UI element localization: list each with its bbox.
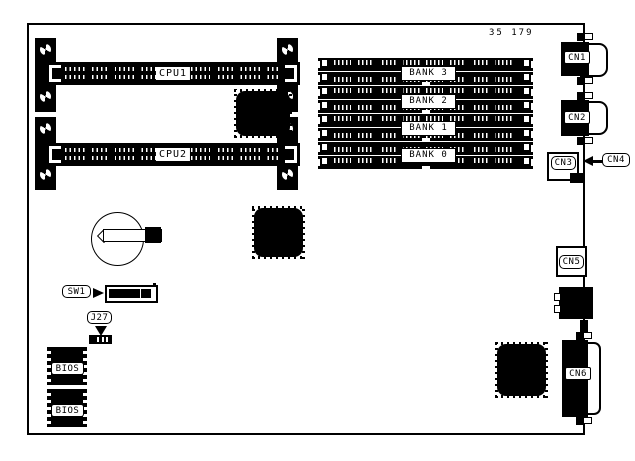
screw-tab (583, 332, 592, 339)
screw-hole-icon (40, 44, 51, 55)
screw-tab (584, 77, 593, 84)
sw1-arrow-icon (93, 288, 104, 298)
cpu2-label: CPU2 (156, 148, 190, 161)
jumper-block (89, 335, 112, 344)
cpu-slot-2: CPU2 (46, 143, 300, 166)
dip-switch-segment (141, 289, 151, 298)
cpu-slot-1: CPU1 (46, 62, 300, 85)
chip-body (236, 91, 290, 136)
cn3-label: CN3 (551, 156, 576, 170)
bank2-label: BANK 2 (401, 94, 456, 109)
qfp-chip-bottom (495, 342, 548, 398)
port-tab (554, 305, 561, 313)
screw-tab (584, 33, 593, 40)
dimm-contacts (334, 88, 517, 93)
sw1-label: SW1 (62, 285, 91, 298)
screw-tab (584, 92, 593, 99)
port-tab (554, 293, 561, 301)
cn6-label: CN6 (565, 367, 591, 380)
screw-hole-icon (40, 91, 51, 102)
bios2-label: BIOS (51, 404, 84, 417)
battery-clip-end (145, 227, 161, 243)
dimm-contacts (334, 60, 517, 65)
bank0-label: BANK 0 (401, 148, 456, 163)
cpu1-label: CPU1 (156, 67, 190, 80)
chipset-chip (234, 89, 292, 138)
bank1-label: BANK 1 (401, 121, 456, 136)
qfp-chip-center (252, 206, 305, 259)
bank3-label: BANK 3 (401, 66, 456, 81)
cn2-label: CN2 (564, 111, 590, 124)
cn3-notch (570, 173, 585, 183)
screw-hole-icon (40, 123, 51, 134)
cn4-arrow-icon (583, 156, 593, 166)
dip-switch-segment (109, 289, 140, 298)
screw-hole-icon (40, 169, 51, 180)
screw-tab (584, 137, 593, 144)
j27-label: J27 (87, 311, 112, 324)
bios1-label: BIOS (51, 362, 84, 375)
chip-body (497, 344, 546, 396)
part-number: 35 179 (489, 28, 534, 38)
screw-hole-icon (282, 169, 293, 180)
chip-body (254, 208, 303, 257)
cn5-label: CN5 (559, 255, 584, 269)
motherboard-diagram: 35 179 CPU1 CPU2 BAN (0, 0, 635, 461)
cn1-label: CN1 (564, 51, 590, 64)
dip-switch-dot (153, 283, 156, 286)
cn4-label: CN4 (602, 153, 630, 167)
screw-tab (583, 417, 592, 424)
stacked-port-connector (559, 287, 593, 319)
screw-hole-icon (282, 44, 293, 55)
